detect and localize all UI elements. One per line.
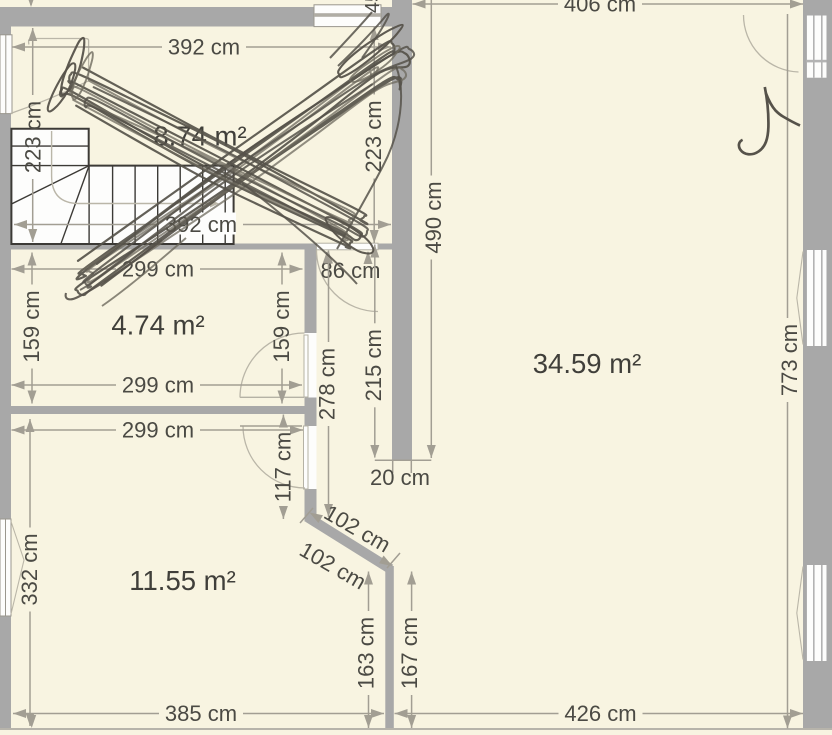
svg-text:406 cm: 406 cm [564, 0, 636, 17]
svg-text:117 cm: 117 cm [271, 432, 296, 503]
svg-text:278 cm: 278 cm [314, 348, 339, 420]
svg-text:385 cm: 385 cm [165, 701, 237, 726]
svg-text:45: 45 [362, 0, 384, 13]
svg-text:215 cm: 215 cm [361, 329, 386, 401]
svg-text:223 cm: 223 cm [21, 101, 46, 173]
svg-text:159 cm: 159 cm [19, 290, 44, 362]
svg-text:167 cm: 167 cm [397, 617, 422, 689]
svg-text:4.74 m²: 4.74 m² [111, 310, 204, 341]
svg-text:392 cm: 392 cm [168, 35, 240, 60]
svg-text:11.55 m²: 11.55 m² [129, 565, 235, 596]
svg-text:163 cm: 163 cm [353, 617, 378, 689]
svg-text:426 cm: 426 cm [564, 701, 636, 726]
svg-text:159 cm: 159 cm [269, 290, 294, 362]
svg-text:299 cm: 299 cm [122, 418, 194, 443]
svg-text:299 cm: 299 cm [122, 257, 194, 282]
svg-text:332 cm: 332 cm [17, 533, 42, 605]
svg-text:20 cm: 20 cm [370, 465, 430, 490]
svg-text:490 cm: 490 cm [421, 181, 446, 253]
svg-text:34.59 m²: 34.59 m² [533, 348, 642, 379]
svg-text:773 cm: 773 cm [777, 324, 802, 396]
svg-text:223 cm: 223 cm [361, 100, 386, 172]
svg-text:299 cm: 299 cm [122, 373, 194, 398]
